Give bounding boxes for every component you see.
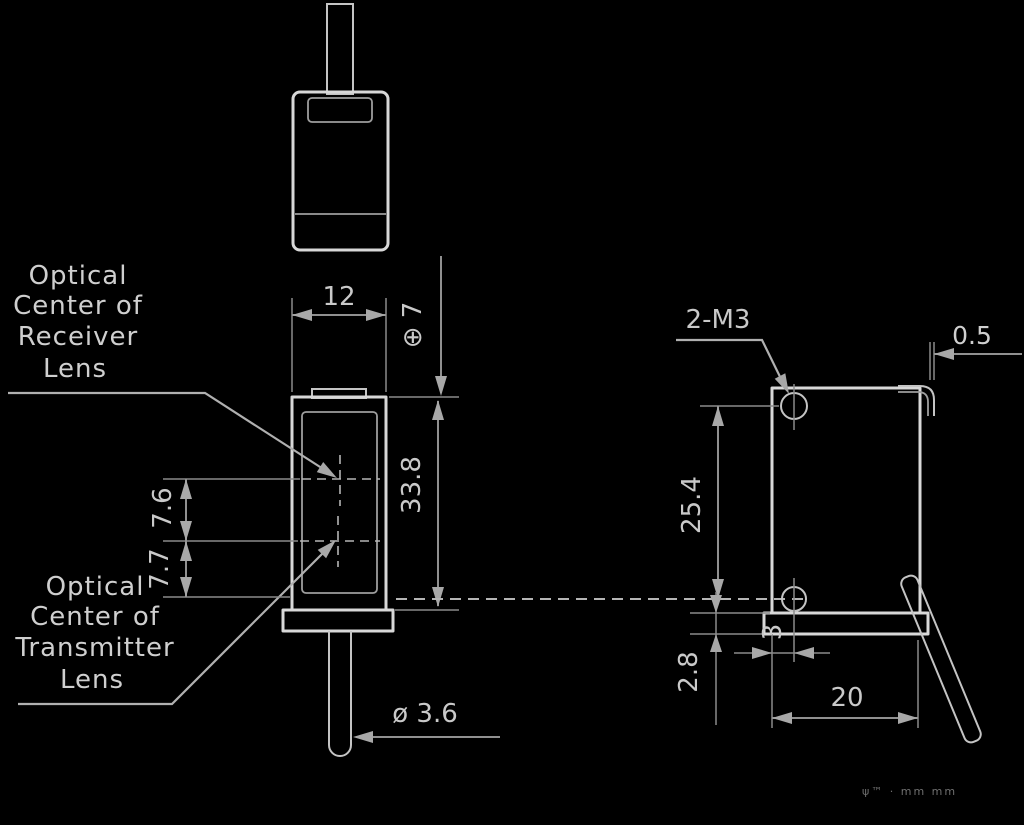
technical-drawing-canvas: Optical Center of Receiver Lens Optical … <box>0 0 1024 825</box>
receiver-note-line1: Optical <box>29 261 128 291</box>
dim-label-base-thickness: 2.8 <box>674 651 704 692</box>
transmitter-note-line2: Center of <box>30 602 160 632</box>
arrowhead-icon <box>435 376 447 396</box>
sensor-dimension-drawing: Optical Center of Receiver Lens Optical … <box>0 0 1024 825</box>
arrowhead-icon <box>180 541 192 561</box>
leader-arrowhead-icon <box>775 373 789 394</box>
receiver-leader-line <box>8 393 331 474</box>
arrowhead-icon <box>752 647 772 659</box>
dim-top-to-receiver: ⊕ 7 <box>389 256 459 397</box>
dim-label-hole-to-face: 3 <box>758 624 788 641</box>
arrowhead-icon <box>353 731 373 743</box>
dim-hole-to-face: 3 <box>734 624 830 728</box>
mounting-tab-inner <box>898 392 928 416</box>
dim-label-transmitter-to-axis: 7.7 <box>145 548 175 589</box>
dim-hole-spacing: 25.4 <box>677 406 779 599</box>
arrowhead-icon <box>898 712 918 724</box>
side-bottom-plate <box>764 613 928 634</box>
transmitter-note-line4: Lens <box>60 665 124 695</box>
connector-stub <box>327 4 353 94</box>
dim-base-thickness: 2.8 <box>674 592 770 725</box>
fine-print: ψ™ · mm mm <box>862 785 957 798</box>
arrowhead-icon <box>180 577 192 597</box>
arrowhead-icon <box>710 634 722 652</box>
arrowhead-icon <box>432 400 444 420</box>
arrowhead-icon <box>366 309 386 321</box>
receiver-note-line3: Receiver <box>18 322 138 352</box>
dim-label-hole-spacing: 25.4 <box>677 476 707 534</box>
arrowhead-icon <box>794 647 814 659</box>
front-view <box>283 389 393 756</box>
side-view <box>764 384 983 744</box>
front-bottom-plate <box>283 610 393 631</box>
label-mounting-holes: 2-M3 <box>686 305 751 335</box>
arrowhead-icon <box>772 712 792 724</box>
arrowhead-icon <box>712 406 724 426</box>
dim-front-height: 33.8 <box>395 400 459 610</box>
dim-front-width: 12 <box>292 282 386 392</box>
arrowhead-icon <box>180 521 192 541</box>
arrowhead-icon <box>292 309 312 321</box>
dim-label-body-depth: 20 <box>830 683 863 713</box>
arrowhead-icon <box>710 595 722 613</box>
dim-tab-thickness: 0.5 <box>930 321 1022 380</box>
transmitter-note: Optical Center of Transmitter Lens <box>14 540 336 704</box>
arrowhead-icon <box>432 587 444 607</box>
arrowhead-icon <box>934 348 954 360</box>
dim-cable-diameter: ø 3.6 <box>353 699 500 743</box>
dim-label-front-width: 12 <box>322 282 355 312</box>
dim-optical-centers: 7.6 7.7 <box>145 479 300 597</box>
transmitter-note-line1: Optical <box>46 572 145 602</box>
front-body-outline <box>292 397 386 610</box>
receiver-note: Optical Center of Receiver Lens <box>8 261 337 478</box>
connector-assembly <box>293 4 388 250</box>
dim-label-front-height: 33.8 <box>397 456 427 514</box>
mounting-holes-leader <box>676 340 786 389</box>
receiver-note-line4: Lens <box>43 354 107 384</box>
receiver-note-line2: Center of <box>13 291 143 321</box>
transmitter-note-line3: Transmitter <box>14 633 174 663</box>
cable <box>329 631 351 756</box>
dim-label-cable-diameter: ø 3.6 <box>392 699 458 729</box>
connector-ridge <box>308 98 372 122</box>
dim-label-top-to-receiver: ⊕ 7 <box>398 302 428 349</box>
callout-mounting-holes: 2-M3 <box>676 305 789 394</box>
dim-label-receiver-to-transmitter: 7.6 <box>148 487 178 528</box>
receiver-leader-arrowhead-icon <box>317 462 337 478</box>
dim-label-tab-thickness: 0.5 <box>952 321 992 350</box>
arrowhead-icon <box>180 479 192 499</box>
